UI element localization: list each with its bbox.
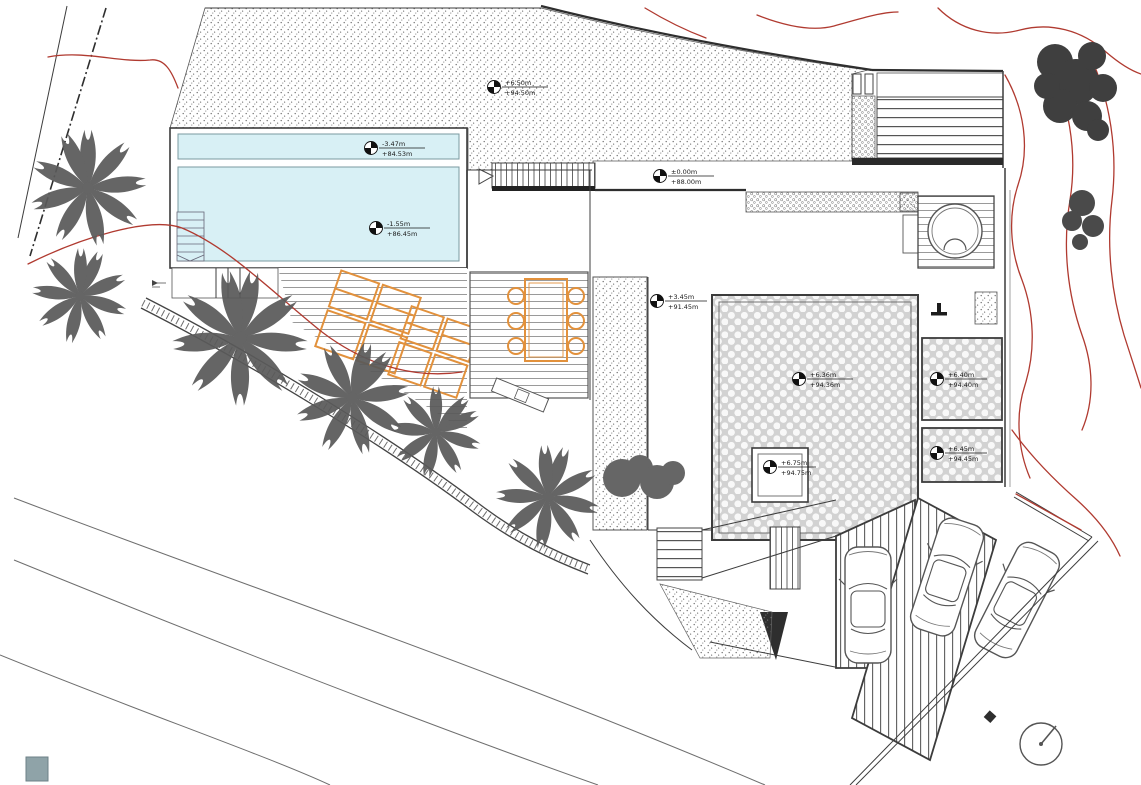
marker-abs-level: +94.45m	[948, 455, 978, 463]
site-plan-drawing: +6.50m +94.50m -3.47m +84.53m -1.55m +86…	[0, 0, 1141, 785]
palm-tree	[17, 233, 144, 360]
entry-ramp	[852, 70, 1003, 168]
marker-abs-level: +94.36m	[810, 381, 840, 389]
marker-abs-level: +88.00m	[671, 178, 701, 186]
marker-abs-level: +84.53m	[382, 150, 412, 158]
palm-tree	[30, 130, 147, 247]
level-marker-terrace: ±0.00m +88.00m	[654, 168, 715, 186]
marker-rel-level: +6.45m	[948, 445, 974, 453]
marker-rel-level: +6.75m	[781, 459, 807, 467]
marker-rel-level: -3.47m	[382, 140, 405, 148]
planter-column	[975, 292, 997, 324]
marker-rel-level: ±0.00m	[671, 168, 697, 176]
ramp-planter-strip	[852, 96, 875, 158]
dining-terrace	[470, 272, 588, 412]
gate-post	[865, 74, 873, 94]
marker-rel-level: +3.45m	[668, 293, 694, 301]
marker-abs-level: +94.40m	[948, 381, 978, 389]
marker-rel-level: +6.40m	[948, 371, 974, 379]
marker-abs-level: +94.75m	[781, 469, 811, 477]
bench-symbol	[931, 303, 947, 316]
pool-basin	[178, 167, 459, 261]
shrub-right	[1062, 190, 1104, 250]
marker-abs-level: +86.45m	[387, 230, 417, 238]
legend-color-chip	[26, 757, 48, 781]
roof-patio	[712, 295, 918, 540]
marker-abs-level: +91.45m	[668, 303, 698, 311]
planter-strip	[746, 192, 918, 212]
boundary-post	[984, 710, 997, 723]
road-edge-lines	[0, 498, 765, 785]
level-marker-garden-mid: +3.45m +91.45m	[651, 293, 708, 311]
gate-post	[853, 74, 861, 94]
pool-overflow-channel	[178, 134, 459, 159]
retaining-wall-band	[852, 158, 1003, 165]
marker-rel-level: +6.36m	[810, 371, 836, 379]
marker-rel-level: +6.50m	[505, 79, 531, 87]
planter-column	[900, 193, 918, 211]
stair-direction-arrow	[479, 169, 493, 184]
north-arrow-icon	[1020, 723, 1062, 765]
main-staircase	[479, 163, 595, 191]
marker-rel-level: -1.55m	[387, 220, 410, 228]
pool-edge-detail	[152, 280, 166, 287]
swimming-pool	[152, 128, 467, 287]
marker-abs-level: +94.50m	[505, 89, 535, 97]
shrubs	[603, 455, 685, 499]
planting-patch	[660, 584, 772, 658]
car-1	[839, 547, 897, 663]
tree-top-right	[1034, 42, 1117, 141]
site-plan-canvas: +6.50m +94.50m -3.47m +84.53m -1.55m +86…	[0, 0, 1141, 785]
